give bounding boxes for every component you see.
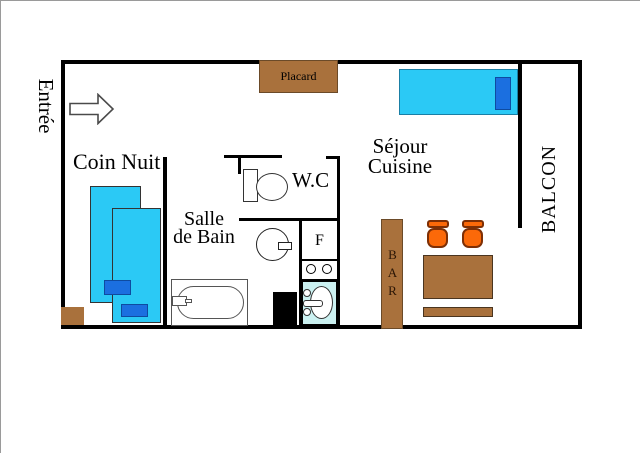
wall-right [578,60,582,329]
closet: Placard [259,60,338,93]
bed-living-pillow [495,77,511,110]
wall-left [61,60,65,329]
entrance-label: Entrée [34,77,58,135]
bathroom-label-line2: de Bain [173,226,235,248]
bed-2-pillow [121,304,148,317]
stool-2-back [462,220,484,228]
wall-bottom [61,325,582,329]
black-appliance [273,292,297,326]
wall-wc-top [224,155,282,158]
entry-mat [61,307,84,325]
bathroom-sink-tap-icon [278,242,292,250]
wall-wc-door-stub [238,155,241,174]
wall-balcony-separator [518,62,522,228]
stool-1-back [427,220,449,228]
kitchen-sink-tap-icon [303,300,323,307]
sleeping-area-label: Coin Nuit [73,149,160,175]
bathroom-label: Salle de Bain [170,210,238,246]
bed-1-pillow [104,280,131,295]
wc-label: W.C [292,168,329,193]
kitchen-sink-knob-2 [303,308,311,316]
hob-burner-1 [306,264,316,274]
stool-2-seat [462,228,483,248]
bar-counter: BAR [381,219,403,329]
floor-plan: Placard F BAR Entrée Coin Nuit [0,0,640,453]
dining-table [423,255,493,299]
wall-wc-bottom [239,218,340,221]
bathtub-faucet-stem [185,299,192,303]
wall-wc-right [337,156,340,325]
living-label-line2: Cuisine [368,154,432,178]
wall-bathroom [163,157,167,325]
bar-label: BAR [384,247,400,301]
balcony-label: BALCON [538,144,562,234]
toilet-bowl [256,173,288,201]
closet-label: Placard [281,69,317,84]
dining-bench [423,307,493,317]
hob-burner-2 [322,264,332,274]
kitchen-divider-1 [302,259,337,261]
fridge-label: F [302,232,337,250]
entrance-arrow-icon [69,93,115,125]
stool-1-seat [427,228,448,248]
kitchen-sink-knob-1 [303,289,311,297]
living-label: Séjour Cuisine [363,136,437,176]
